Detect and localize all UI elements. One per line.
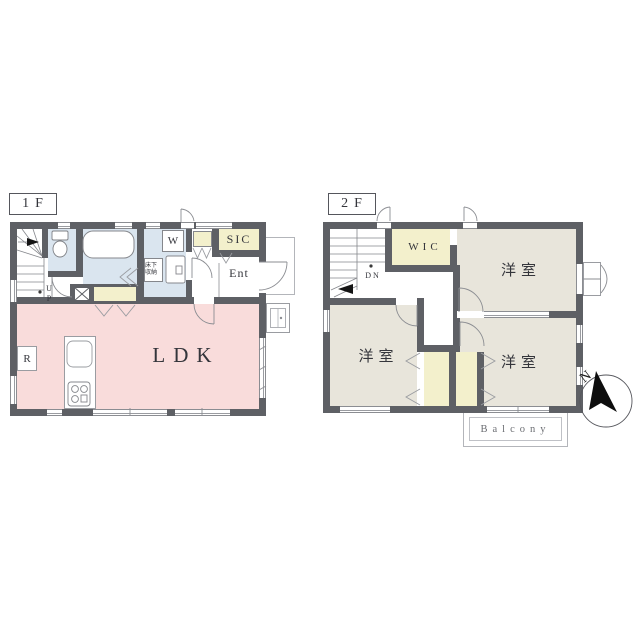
floor-plan-canvas: 1F R W 床下収納 LDK SIC Ent UP	[0, 0, 640, 640]
shape	[33, 229, 42, 256]
door-gap	[457, 311, 484, 318]
stairs-1f	[17, 229, 44, 297]
wall	[186, 229, 192, 252]
stairs-2f	[330, 229, 385, 297]
window	[58, 222, 70, 229]
shape	[181, 209, 194, 222]
casement-window	[463, 222, 477, 229]
wall	[453, 318, 460, 348]
casement-window	[377, 222, 391, 229]
shape	[193, 248, 202, 258]
label-bedroom-ne: 洋室	[470, 258, 567, 280]
washer-space: W	[162, 230, 184, 252]
sliding-partition	[484, 311, 549, 318]
shape	[192, 258, 212, 278]
north-arrow-icon	[589, 371, 617, 412]
meter-box-inner	[270, 308, 286, 328]
kitchen-counter	[64, 336, 96, 409]
room-toilet	[48, 229, 76, 271]
shaft-box	[74, 287, 90, 301]
label-sic: SIC	[217, 229, 261, 250]
shape	[601, 265, 607, 293]
ldk-closet	[94, 287, 136, 301]
shape	[464, 207, 477, 221]
entrance-porch	[262, 237, 295, 295]
window	[175, 409, 230, 416]
wall	[76, 229, 83, 277]
window	[93, 409, 167, 416]
wall	[48, 271, 83, 277]
window	[259, 338, 266, 398]
label-wic: WIC	[392, 236, 454, 258]
floor2-tag: 2F	[328, 193, 376, 215]
wall	[186, 280, 192, 297]
label-bedroom-se: 洋室	[470, 350, 567, 372]
refrigerator-space: R	[17, 346, 37, 371]
bay-window	[583, 262, 601, 296]
shape	[17, 250, 42, 258]
label-entrance: Ent	[217, 263, 261, 283]
shape	[22, 229, 42, 256]
window	[576, 325, 583, 343]
casement-window	[181, 222, 194, 229]
wall	[42, 229, 48, 258]
stairs-up-arrow-icon	[27, 238, 39, 246]
window	[487, 406, 549, 413]
door-gap	[194, 297, 214, 304]
floor1-tag: 1F	[9, 193, 57, 215]
stairs-down-arrow-icon	[338, 284, 353, 294]
window	[576, 367, 583, 385]
label-stairs-up: UP	[42, 280, 56, 308]
window	[323, 310, 330, 332]
shape	[377, 207, 390, 221]
label-stairs-down: DN	[360, 269, 386, 281]
window	[10, 376, 17, 404]
window	[115, 222, 132, 229]
shape	[17, 236, 42, 256]
wall	[214, 297, 266, 304]
shape	[202, 248, 211, 258]
window	[196, 222, 232, 229]
window	[340, 406, 390, 413]
wall	[323, 298, 396, 305]
compass-circle	[580, 375, 632, 427]
wall	[219, 250, 266, 257]
shape	[334, 286, 357, 297]
label-ldk: LDK	[120, 340, 244, 370]
stairs-down-dot	[369, 264, 372, 267]
compass: N	[577, 368, 632, 427]
window	[146, 222, 160, 229]
wall	[323, 222, 583, 229]
window	[10, 280, 17, 302]
label-balcony: Balcony	[469, 419, 562, 439]
wall	[385, 265, 460, 272]
underfloor-storage: 床下収納	[144, 258, 163, 282]
shape	[331, 278, 357, 290]
label-bedroom-sw: 洋室	[330, 344, 422, 366]
window	[47, 409, 62, 416]
hall-closet	[193, 231, 212, 247]
casement-window	[576, 264, 583, 294]
closet-left	[424, 352, 449, 406]
wall	[449, 352, 456, 406]
